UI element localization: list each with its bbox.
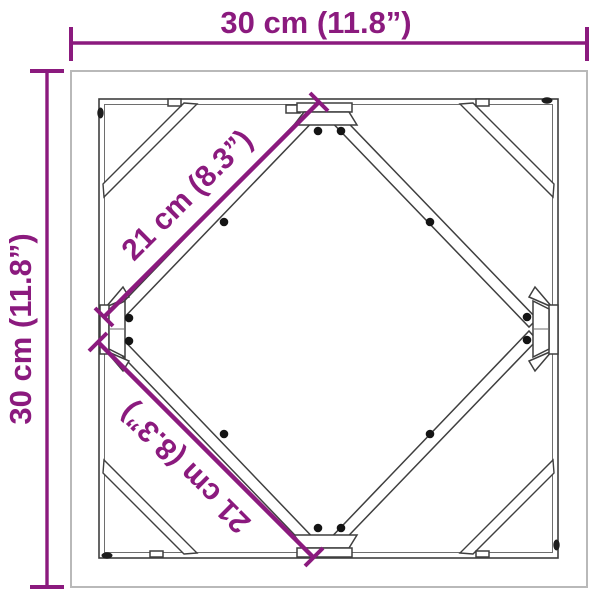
dimension-diagonal-lower: 21 cm (8.3”) <box>89 333 323 566</box>
screw-dot <box>426 430 435 439</box>
screw-dot <box>337 127 346 136</box>
diagram-canvas: 30 cm (11.8”) 30 cm (11.8”) 21 cm (8.3”)… <box>0 0 600 600</box>
screw-dot <box>314 524 323 533</box>
dimension-left: 30 cm (11.8”) <box>3 71 64 587</box>
screw-dot <box>220 218 229 227</box>
screw-dot <box>426 218 435 227</box>
corner-gusset-top-right <box>460 97 554 197</box>
dimension-line <box>98 342 314 558</box>
vertex-bracket-right <box>529 287 558 371</box>
hinge-nub <box>542 97 553 103</box>
screw-dot <box>523 336 532 345</box>
strut-upper-left <box>107 104 322 327</box>
frame-inner-lip <box>105 105 553 553</box>
dimension-line <box>104 102 319 317</box>
hinge-nub <box>553 540 559 551</box>
product-dimension-diagram: 30 cm (11.8”) 30 cm (11.8”) 21 cm (8.3”)… <box>0 0 600 600</box>
hinge-nub <box>97 108 103 119</box>
dimension-top: 30 cm (11.8”) <box>71 5 587 61</box>
corner-gusset-bottom-right <box>460 460 560 557</box>
frame-inner-square <box>99 99 558 558</box>
dimension-label-left: 30 cm (11.8”) <box>3 233 38 424</box>
screw-dot <box>125 337 134 346</box>
hinge-nub <box>102 552 113 558</box>
screw-dot <box>337 524 346 533</box>
screw-dot <box>220 430 229 439</box>
screw-dot <box>314 127 323 136</box>
diagonal-struts <box>107 104 537 555</box>
dimension-label-top: 30 cm (11.8”) <box>220 5 411 40</box>
frame-inner-edge <box>99 99 558 558</box>
screw-dot <box>125 314 134 323</box>
dimension-diagonal-upper: 21 cm (8.3”) <box>95 93 328 326</box>
screw-dot <box>523 313 532 322</box>
